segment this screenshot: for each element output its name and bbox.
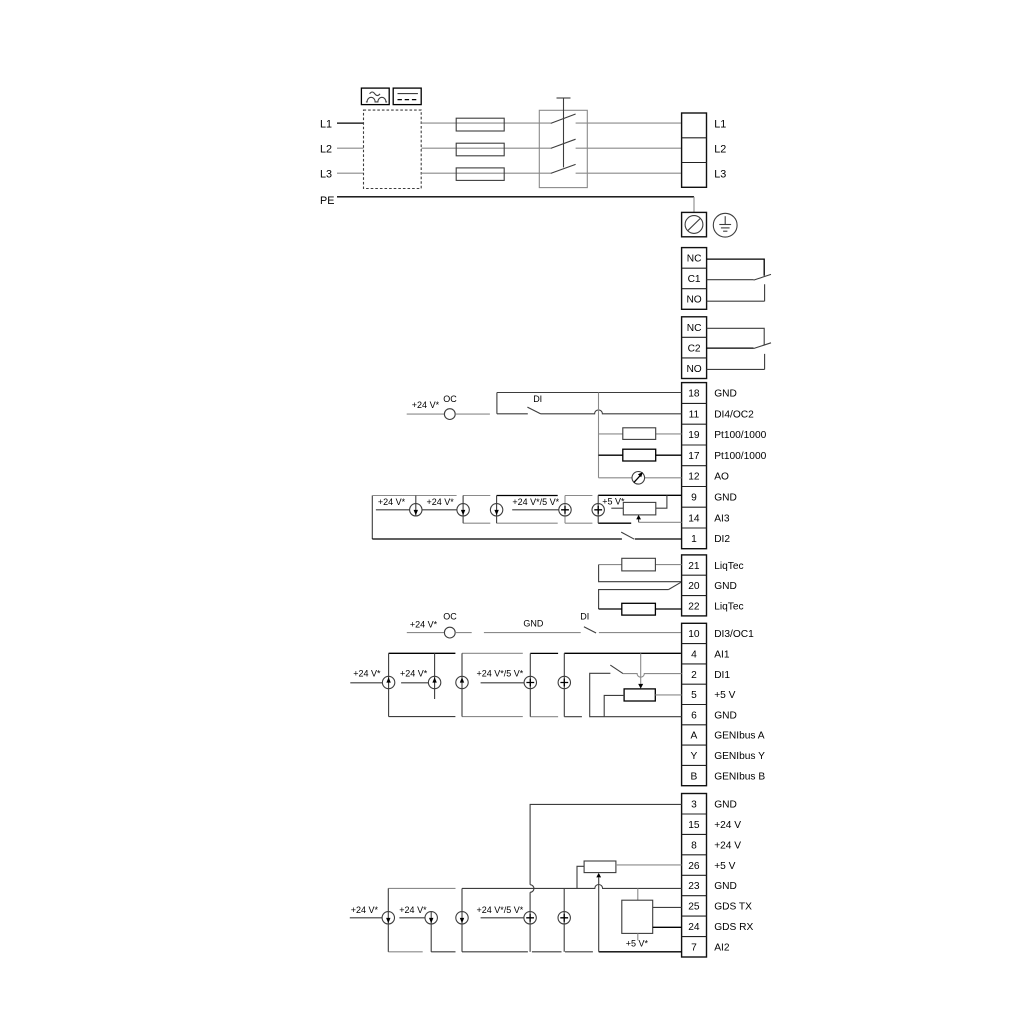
svg-text:8: 8	[691, 840, 697, 851]
svg-text:GND: GND	[714, 710, 737, 721]
svg-text:+5 V: +5 V	[714, 690, 735, 701]
svg-text:DI1: DI1	[714, 670, 730, 681]
svg-text:14: 14	[688, 513, 700, 524]
svg-text:NC: NC	[687, 323, 702, 334]
svg-text:GENIbus B: GENIbus B	[714, 771, 765, 782]
svg-text:NC: NC	[687, 254, 702, 265]
svg-text:12: 12	[688, 472, 700, 483]
svg-text:2: 2	[691, 670, 697, 681]
svg-text:L3: L3	[714, 168, 726, 180]
svg-text:DI: DI	[533, 394, 542, 404]
svg-text:10: 10	[688, 629, 700, 640]
svg-text:GND: GND	[714, 389, 737, 400]
svg-text:DI2: DI2	[714, 534, 730, 545]
svg-text:Y: Y	[691, 751, 698, 762]
svg-text:+24 V*/5 V*: +24 V*/5 V*	[512, 497, 559, 507]
svg-text:AI2: AI2	[714, 943, 730, 954]
svg-text:AO: AO	[714, 472, 729, 483]
svg-text:C1: C1	[688, 274, 701, 285]
svg-text:Pt100/1000: Pt100/1000	[714, 430, 766, 441]
svg-text:11: 11	[689, 409, 700, 420]
svg-text:+24 V*: +24 V*	[412, 400, 440, 410]
svg-text:L2: L2	[320, 143, 332, 155]
svg-text:3: 3	[691, 800, 697, 811]
svg-text:L1: L1	[320, 118, 332, 130]
svg-text:22: 22	[688, 602, 700, 613]
svg-text:26: 26	[688, 861, 700, 872]
svg-text:C2: C2	[688, 343, 701, 354]
svg-text:A: A	[691, 731, 698, 742]
svg-text:PE: PE	[320, 195, 334, 207]
svg-text:20: 20	[688, 581, 700, 592]
svg-text:L1: L1	[714, 118, 726, 130]
svg-text:+24 V: +24 V	[714, 820, 741, 831]
svg-text:5: 5	[691, 690, 697, 701]
svg-text:17: 17	[688, 451, 700, 462]
svg-text:GDS RX: GDS RX	[714, 922, 753, 933]
svg-text:7: 7	[691, 943, 697, 954]
svg-text:LiqTec: LiqTec	[714, 602, 743, 613]
svg-text:DI4/OC2: DI4/OC2	[714, 409, 754, 420]
svg-text:19: 19	[688, 430, 700, 441]
svg-text:+24 V*: +24 V*	[400, 668, 428, 678]
svg-text:+24 V*: +24 V*	[410, 620, 438, 630]
svg-text:4: 4	[691, 650, 697, 661]
svg-text:Pt100/1000: Pt100/1000	[714, 451, 766, 462]
svg-text:GND: GND	[714, 881, 737, 892]
svg-text:+5 V*: +5 V*	[626, 939, 649, 949]
svg-text:+24 V*: +24 V*	[353, 668, 381, 678]
svg-text:+24 V*: +24 V*	[399, 905, 427, 915]
svg-text:NO: NO	[686, 295, 701, 306]
svg-text:6: 6	[691, 710, 697, 721]
svg-text:LiqTec: LiqTec	[714, 561, 743, 572]
svg-text:GENIbus Y: GENIbus Y	[714, 751, 765, 762]
svg-text:+24 V*: +24 V*	[427, 497, 455, 507]
svg-text:OC: OC	[443, 394, 457, 404]
svg-text:DI3/OC1: DI3/OC1	[714, 629, 754, 640]
svg-text:1: 1	[691, 534, 697, 545]
svg-text:GND: GND	[714, 800, 737, 811]
svg-text:AI1: AI1	[714, 650, 730, 661]
svg-text:9: 9	[691, 493, 697, 504]
svg-text:+5 V: +5 V	[714, 861, 735, 872]
svg-text:OC: OC	[443, 611, 457, 621]
svg-text:B: B	[691, 771, 698, 782]
svg-text:GND: GND	[714, 581, 737, 592]
svg-text:GENIbus A: GENIbus A	[714, 731, 765, 742]
svg-text:NO: NO	[686, 364, 701, 375]
svg-text:21: 21	[688, 561, 700, 572]
svg-text:+5 V*: +5 V*	[602, 497, 625, 507]
svg-text:23: 23	[688, 881, 700, 892]
svg-text:AI3: AI3	[714, 513, 730, 524]
svg-text:25: 25	[688, 902, 700, 913]
svg-text:GDS TX: GDS TX	[714, 902, 752, 913]
svg-text:+24 V*: +24 V*	[378, 497, 406, 507]
svg-text:GND: GND	[714, 493, 737, 504]
svg-text:L3: L3	[320, 168, 332, 180]
svg-text:15: 15	[688, 820, 700, 831]
svg-text:+24 V*/5 V*: +24 V*/5 V*	[477, 905, 524, 915]
svg-text:L2: L2	[714, 143, 726, 155]
svg-text:+24 V*/5 V*: +24 V*/5 V*	[477, 668, 524, 678]
svg-text:GND: GND	[523, 619, 544, 629]
svg-text:+24 V: +24 V	[714, 840, 741, 851]
svg-text:+24 V*: +24 V*	[351, 905, 379, 915]
svg-text:24: 24	[688, 922, 700, 933]
svg-text:DI: DI	[580, 611, 589, 621]
svg-text:18: 18	[688, 389, 700, 400]
